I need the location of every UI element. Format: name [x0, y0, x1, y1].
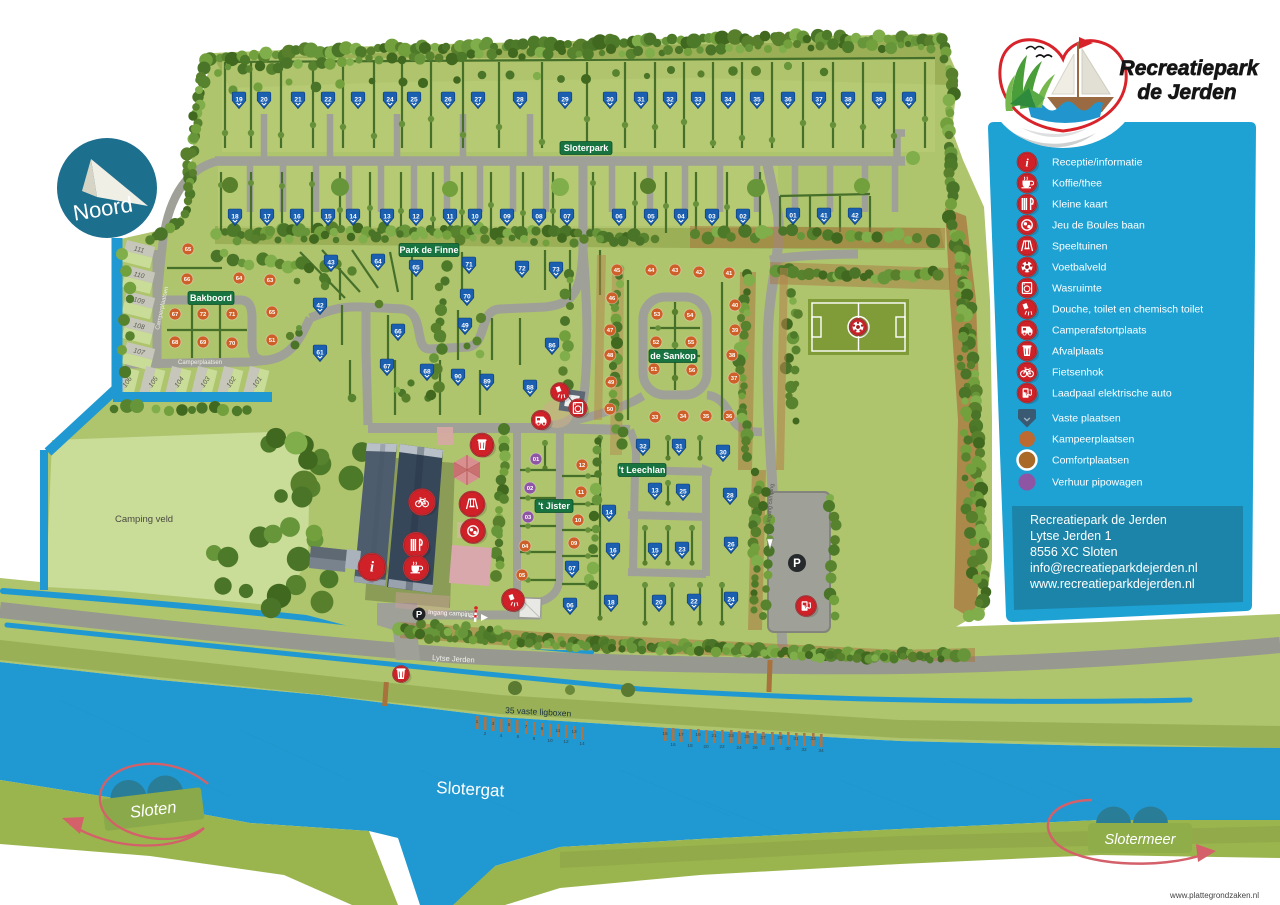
- svg-text:5: 5: [508, 722, 511, 728]
- svg-text:11: 11: [556, 728, 561, 734]
- svg-text:13: 13: [383, 213, 391, 220]
- svg-text:Wasruimte: Wasruimte: [1052, 283, 1102, 295]
- svg-text:34: 34: [680, 414, 687, 420]
- svg-text:04: 04: [677, 213, 685, 220]
- svg-text:24: 24: [736, 745, 742, 751]
- svg-text:70: 70: [229, 341, 236, 347]
- svg-text:72: 72: [200, 312, 207, 318]
- svg-text:02: 02: [527, 486, 534, 492]
- svg-text:89: 89: [483, 378, 491, 385]
- svg-text:8556 XC Sloten: 8556 XC Sloten: [1030, 545, 1118, 559]
- svg-text:47: 47: [607, 328, 614, 334]
- svg-text:22: 22: [719, 744, 725, 750]
- svg-text:53: 53: [654, 312, 661, 318]
- svg-text:Camperplaatsen: Camperplaatsen: [178, 360, 222, 366]
- svg-text:07: 07: [568, 565, 576, 572]
- svg-text:Jeu de Boules baan: Jeu de Boules baan: [1052, 220, 1145, 232]
- svg-text:Koffie/thee: Koffie/thee: [1052, 178, 1102, 190]
- svg-text:51: 51: [651, 367, 658, 373]
- svg-text:Kampeerplaatsen: Kampeerplaatsen: [1052, 434, 1134, 446]
- svg-text:23: 23: [728, 733, 734, 739]
- svg-text:P: P: [416, 610, 423, 621]
- svg-text:31: 31: [675, 443, 683, 450]
- svg-text:14: 14: [579, 741, 585, 747]
- svg-text:18: 18: [607, 599, 615, 606]
- svg-text:Recreatiepark: Recreatiepark: [1120, 57, 1260, 80]
- svg-text:Camperafstortplaats: Camperafstortplaats: [1052, 325, 1147, 337]
- svg-text:Lytse Jerden 1: Lytse Jerden 1: [1030, 529, 1112, 543]
- svg-text:65: 65: [269, 310, 276, 316]
- svg-text:Kleine kaart: Kleine kaart: [1052, 199, 1108, 211]
- svg-text:25: 25: [410, 96, 418, 103]
- svg-text:17: 17: [678, 732, 684, 738]
- svg-text:12: 12: [579, 463, 586, 469]
- svg-text:37: 37: [815, 96, 823, 103]
- svg-text:56: 56: [689, 368, 696, 374]
- svg-text:15: 15: [651, 547, 659, 554]
- svg-text:27: 27: [760, 735, 766, 741]
- svg-text:50: 50: [607, 407, 614, 413]
- svg-text:12: 12: [412, 213, 420, 220]
- svg-text:7: 7: [525, 724, 528, 730]
- svg-text:34: 34: [818, 748, 824, 754]
- svg-text:70: 70: [463, 293, 471, 300]
- svg-text:66: 66: [184, 277, 191, 283]
- svg-text:41: 41: [726, 271, 733, 277]
- svg-text:Douche, toilet en chemisch toi: Douche, toilet en chemisch toilet: [1052, 304, 1203, 316]
- svg-text:14: 14: [349, 213, 357, 220]
- svg-text:16: 16: [670, 742, 676, 748]
- svg-text:Vaste plaatsen: Vaste plaatsen: [1052, 413, 1121, 425]
- svg-text:35: 35: [753, 96, 761, 103]
- svg-text:31: 31: [793, 736, 799, 742]
- svg-text:Comfortplaatsen: Comfortplaatsen: [1052, 455, 1129, 467]
- svg-text:15: 15: [324, 213, 332, 220]
- svg-text:69: 69: [200, 340, 207, 346]
- svg-text:71: 71: [229, 312, 236, 318]
- svg-text:14: 14: [605, 509, 613, 516]
- svg-text:de Sankop: de Sankop: [650, 351, 696, 361]
- svg-text:08: 08: [535, 213, 543, 220]
- svg-text:05: 05: [647, 213, 655, 220]
- svg-text:26: 26: [727, 541, 735, 548]
- svg-text:68: 68: [172, 340, 179, 346]
- svg-text:'t Leechlan: 't Leechlan: [619, 465, 666, 475]
- svg-text:30: 30: [719, 449, 727, 456]
- svg-text:Voetbalveld: Voetbalveld: [1052, 262, 1106, 274]
- svg-text:10: 10: [575, 518, 582, 524]
- svg-text:51: 51: [269, 338, 276, 344]
- svg-text:de Jerden: de Jerden: [1137, 81, 1236, 104]
- svg-text:Bakboord: Bakboord: [190, 293, 232, 303]
- svg-text:Receptie/informatie: Receptie/informatie: [1052, 157, 1143, 169]
- svg-text:37: 37: [731, 376, 738, 382]
- svg-text:15: 15: [662, 731, 668, 737]
- svg-text:22: 22: [324, 96, 332, 103]
- svg-text:40: 40: [905, 96, 913, 103]
- svg-text:06: 06: [615, 213, 623, 220]
- svg-text:38: 38: [844, 96, 852, 103]
- svg-text:25: 25: [744, 734, 750, 740]
- svg-text:35: 35: [703, 414, 710, 420]
- svg-text:42: 42: [851, 212, 859, 219]
- svg-text:32: 32: [639, 443, 647, 450]
- svg-text:33: 33: [694, 96, 702, 103]
- svg-text:66: 66: [394, 328, 402, 335]
- svg-text:24: 24: [386, 96, 394, 103]
- svg-text:20: 20: [655, 599, 663, 606]
- svg-text:32: 32: [666, 96, 674, 103]
- svg-text:68: 68: [423, 368, 431, 375]
- svg-text:24: 24: [727, 596, 735, 603]
- svg-text:11: 11: [447, 213, 454, 220]
- svg-text:61: 61: [316, 349, 324, 356]
- svg-text:36: 36: [726, 414, 733, 420]
- svg-text:Speeltuinen: Speeltuinen: [1052, 241, 1108, 253]
- svg-text:Recreatiepark de Jerden: Recreatiepark de Jerden: [1030, 513, 1167, 527]
- svg-text:28: 28: [516, 96, 524, 103]
- svg-text:21: 21: [711, 733, 717, 739]
- svg-text:90: 90: [454, 373, 462, 380]
- svg-text:88: 88: [526, 384, 534, 391]
- svg-text:05: 05: [519, 573, 526, 579]
- svg-text:63: 63: [267, 278, 274, 284]
- svg-text:65: 65: [185, 247, 192, 253]
- svg-text:73: 73: [552, 266, 560, 273]
- svg-text:67: 67: [383, 363, 391, 370]
- svg-text:03: 03: [708, 213, 716, 220]
- svg-text:54: 54: [687, 313, 694, 319]
- svg-text:01: 01: [533, 457, 540, 463]
- svg-text:Sloterpark: Sloterpark: [564, 143, 610, 153]
- svg-text:42: 42: [316, 302, 324, 309]
- svg-text:22: 22: [690, 598, 698, 605]
- svg-text:www.plattegrondzaken.nl: www.plattegrondzaken.nl: [1169, 891, 1259, 900]
- svg-text:23: 23: [678, 546, 686, 553]
- svg-text:43: 43: [672, 268, 679, 274]
- svg-text:42: 42: [696, 270, 703, 276]
- svg-text:18: 18: [687, 743, 693, 749]
- svg-text:20: 20: [260, 96, 268, 103]
- svg-text:49: 49: [608, 380, 615, 386]
- svg-text:28: 28: [726, 492, 734, 499]
- svg-text:Slotergat: Slotergat: [436, 778, 505, 801]
- svg-text:29: 29: [561, 96, 569, 103]
- svg-text:info@recreatieparkdejerden.nl: info@recreatieparkdejerden.nl: [1030, 561, 1198, 575]
- svg-text:18: 18: [231, 213, 239, 220]
- svg-text:38: 38: [729, 353, 736, 359]
- svg-text:40: 40: [732, 303, 739, 309]
- svg-text:72: 72: [518, 265, 526, 272]
- svg-text:26: 26: [752, 745, 758, 751]
- svg-text:12: 12: [563, 739, 569, 745]
- svg-text:1: 1: [476, 719, 479, 725]
- svg-text:8: 8: [533, 736, 536, 742]
- svg-text:Slotermeer: Slotermeer: [1105, 832, 1177, 848]
- svg-text:21: 21: [294, 96, 302, 103]
- svg-text:41: 41: [820, 212, 828, 219]
- svg-text:65: 65: [412, 264, 420, 271]
- svg-text:86: 86: [548, 342, 556, 349]
- svg-text:Fietsenhok: Fietsenhok: [1052, 367, 1104, 379]
- svg-text:www.recreatieparkdejerden.nl: www.recreatieparkdejerden.nl: [1029, 577, 1195, 591]
- svg-text:09: 09: [503, 213, 511, 220]
- svg-text:52: 52: [653, 340, 660, 346]
- svg-text:30: 30: [606, 96, 614, 103]
- svg-text:27: 27: [474, 96, 482, 103]
- svg-text:Afvalplaats: Afvalplaats: [1052, 346, 1103, 358]
- svg-text:44: 44: [648, 268, 655, 274]
- svg-text:19: 19: [695, 732, 701, 738]
- svg-text:33: 33: [652, 415, 659, 421]
- svg-text:10: 10: [547, 738, 553, 744]
- svg-text:Verhuur pipowagen: Verhuur pipowagen: [1052, 477, 1143, 489]
- svg-text:10: 10: [471, 213, 479, 220]
- svg-text:67: 67: [172, 312, 179, 318]
- svg-text:39: 39: [875, 96, 883, 103]
- svg-text:71: 71: [465, 261, 473, 268]
- svg-text:04: 04: [522, 544, 529, 550]
- svg-text:64: 64: [236, 276, 243, 282]
- svg-text:Park de Finne: Park de Finne: [399, 245, 458, 255]
- svg-text:4: 4: [500, 733, 503, 739]
- svg-text:16: 16: [293, 213, 301, 220]
- svg-text:23: 23: [354, 96, 362, 103]
- svg-text:6: 6: [517, 734, 520, 740]
- svg-text:49: 49: [461, 322, 469, 329]
- svg-text:16: 16: [609, 547, 617, 554]
- svg-text:Camping veld: Camping veld: [115, 514, 173, 525]
- svg-text:'t Jister: 't Jister: [538, 501, 570, 511]
- svg-text:29: 29: [777, 735, 783, 741]
- svg-text:19: 19: [235, 96, 243, 103]
- svg-text:P: P: [793, 558, 801, 570]
- svg-text:07: 07: [563, 213, 571, 220]
- svg-text:17: 17: [263, 213, 271, 220]
- svg-text:Laadpaal elektrische auto: Laadpaal elektrische auto: [1052, 388, 1172, 400]
- svg-text:25: 25: [679, 488, 687, 495]
- svg-text:48: 48: [607, 353, 614, 359]
- svg-text:11: 11: [578, 490, 585, 496]
- svg-text:20: 20: [703, 744, 709, 750]
- svg-text:06: 06: [566, 602, 574, 609]
- svg-text:34: 34: [724, 96, 732, 103]
- svg-text:39: 39: [732, 328, 739, 334]
- svg-text:45: 45: [614, 268, 621, 274]
- svg-text:26: 26: [444, 96, 452, 103]
- svg-text:3: 3: [492, 721, 495, 727]
- svg-text:32: 32: [801, 747, 807, 753]
- svg-text:36: 36: [784, 96, 792, 103]
- svg-text:33: 33: [810, 736, 816, 742]
- svg-text:30: 30: [785, 746, 791, 752]
- svg-text:64: 64: [374, 258, 382, 265]
- svg-text:03: 03: [525, 515, 532, 521]
- svg-text:13: 13: [571, 729, 577, 735]
- svg-text:9: 9: [541, 726, 544, 732]
- svg-text:09: 09: [571, 541, 578, 547]
- svg-text:46: 46: [609, 296, 616, 302]
- svg-text:13: 13: [651, 487, 659, 494]
- svg-text:01: 01: [789, 212, 797, 219]
- svg-text:55: 55: [688, 340, 695, 346]
- svg-text:28: 28: [769, 746, 775, 752]
- svg-text:02: 02: [739, 213, 747, 220]
- svg-text:31: 31: [637, 96, 645, 103]
- svg-text:43: 43: [327, 259, 335, 266]
- svg-text:2: 2: [484, 731, 487, 737]
